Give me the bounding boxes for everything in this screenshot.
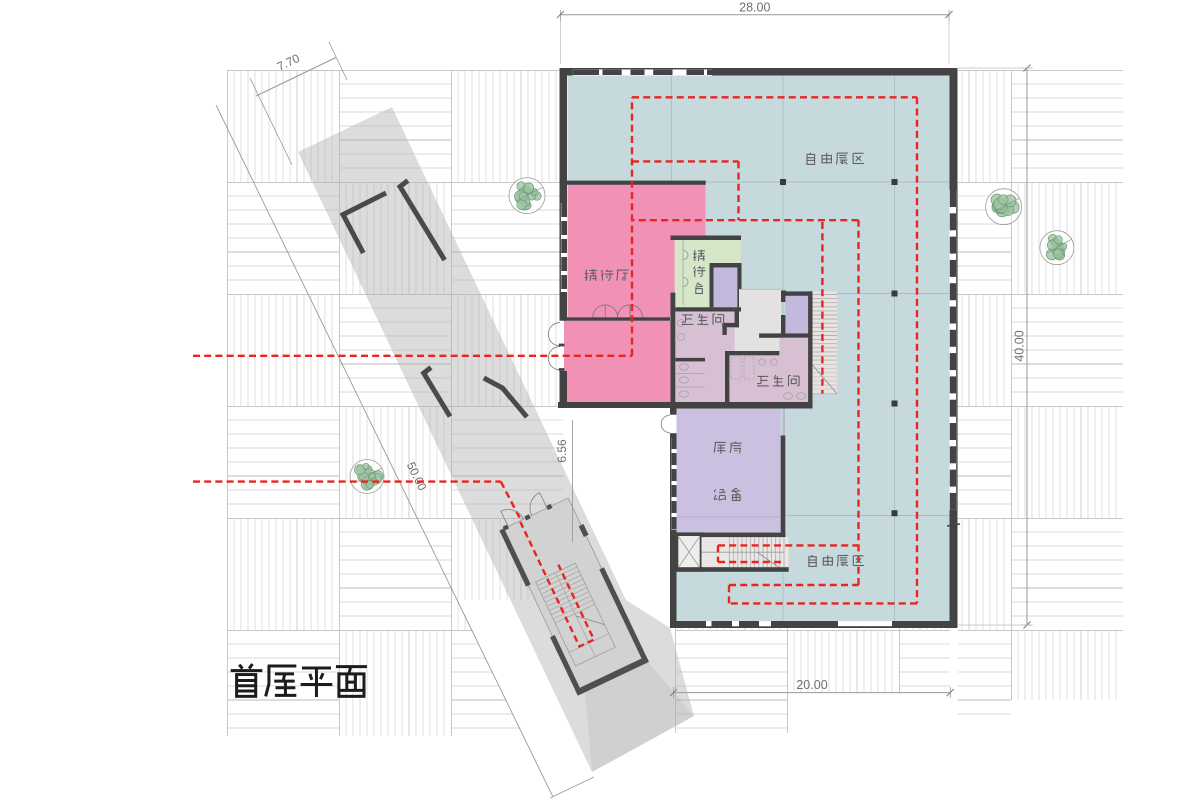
svg-text:40.00: 40.00 — [1013, 330, 1027, 361]
svg-text:6.56: 6.56 — [555, 439, 569, 463]
svg-text:28.00: 28.00 — [739, 1, 770, 15]
svg-text:20.00: 20.00 — [796, 678, 827, 692]
